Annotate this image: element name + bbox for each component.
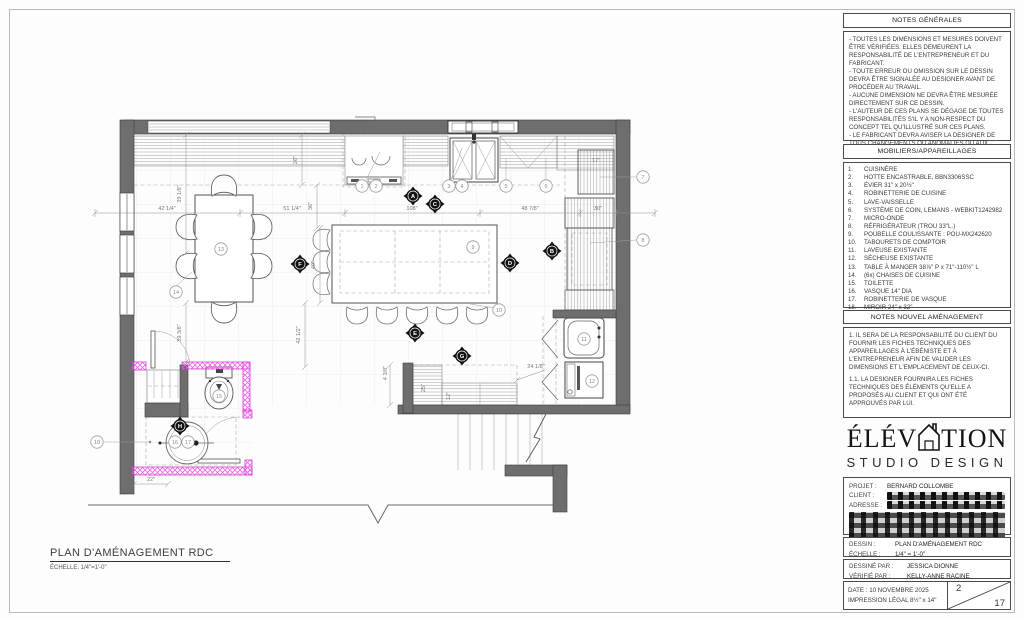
- window-left: [120, 193, 134, 315]
- list-item: 4.ROBINETTERIE DE CUISINE: [844, 190, 1010, 198]
- dim-label: 22": [147, 477, 155, 483]
- svg-text:G: G: [460, 354, 465, 360]
- svg-text:10: 10: [496, 308, 502, 314]
- notes-nouvel-p1: 1. IL SERA DE LA RESPONSABILITÉ DU CLIEN…: [844, 328, 1010, 376]
- dessin-row: DESSIN : PLAN D'AMÉNAGEMENT RDC: [849, 540, 1005, 550]
- svg-text:E: E: [413, 331, 417, 337]
- refrigerator: [567, 228, 612, 290]
- svg-text:5: 5: [505, 184, 508, 190]
- plan-title-block: PLAN D'AMÉNAGEMENT RDC ÉCHELLE: 1/4"=1'-…: [50, 543, 230, 571]
- logo-subtitle: STUDIO DESIGN: [843, 455, 1011, 470]
- list-item: 16.VASQUE 14" DIA: [844, 288, 1010, 296]
- house-icon: [916, 421, 942, 451]
- list-item: 9.POUBELLE COULISSANTE : POU-MX242620: [844, 231, 1010, 239]
- svg-text:6: 6: [545, 184, 548, 190]
- svg-text:3: 3: [448, 184, 451, 190]
- dessine-value: JESSICA DIONNE: [907, 562, 958, 572]
- dim-label: 25": [421, 384, 427, 392]
- callout-7: 7: [637, 171, 649, 183]
- list-item: 15.TOILETTE: [844, 280, 1010, 288]
- callout-17: 17: [182, 436, 194, 448]
- page-number-cell: 2 17: [947, 582, 1010, 609]
- dim-label: 39 3/8": [177, 324, 183, 342]
- callout-2: 2: [370, 180, 382, 192]
- projet-value: BERNARD COLLOMBE: [887, 482, 953, 491]
- svg-text:D: D: [508, 261, 512, 267]
- svg-text:4: 4: [461, 184, 464, 190]
- dim-label: 26": [293, 156, 299, 164]
- echelle-value: 1/4" = 1'-0": [895, 550, 925, 560]
- verifie-value: KELLY-ANNE RACINE: [907, 572, 970, 582]
- adresse-row: ADRESSE :: [849, 501, 1005, 510]
- dessin-box: DESSIN : PLAN D'AMÉNAGEMENT RDC ÉCHELLE …: [843, 537, 1011, 557]
- notes-generales-title: NOTES GÉNÉRALES: [844, 14, 1010, 27]
- mobiliers-header-box: MOBILIERS/APPAREILLAGES: [843, 144, 1011, 159]
- address-redacted-block: [849, 512, 1005, 538]
- svg-text:8: 8: [642, 238, 645, 244]
- callout-5: 5: [500, 180, 512, 192]
- list-item: 7.MICRO-ONDE: [844, 215, 1010, 223]
- drawing-sheet: 42 1/4" 51 1/4" 108" 48 7/8" 30" 17" 39 …: [0, 0, 1024, 621]
- dim-label: 12": [446, 392, 452, 400]
- closet: [147, 370, 184, 403]
- credits-box: DESSINÉ PAR : JESSICA DIONNE VÉRIFIÉ PAR…: [843, 559, 1011, 579]
- logo-text-left: ÉLÉV: [847, 426, 917, 452]
- dessine-label: DESSINÉ PAR :: [849, 562, 901, 572]
- dessine-row: DESSINÉ PAR : JESSICA DIONNE: [849, 562, 1005, 572]
- svg-text:H: H: [178, 424, 182, 430]
- verifie-row: VÉRIFIÉ PAR : KELLY-ANNE RACINE: [849, 572, 1005, 582]
- logo-wordmark: ÉLÉV TION: [843, 421, 1011, 452]
- counter-mid: [403, 136, 448, 166]
- wall-closet-side: [180, 365, 188, 417]
- wall-bench-stub: [403, 363, 413, 413]
- projet-label: PROJET :: [849, 482, 883, 491]
- notes-nouvel-p2: 1.1. LA DESIGNER FOURNIRA LES FICHES TEC…: [844, 376, 1010, 412]
- list-item: 10.TABOURETS DE COMPTOIR: [844, 239, 1010, 247]
- corner-cabinet: [500, 136, 557, 168]
- svg-text:2: 2: [375, 184, 378, 190]
- svg-text:16: 16: [172, 440, 178, 446]
- list-item: 13.TABLE À MANGER 38⅞" P x 71"-110½" L: [844, 264, 1010, 272]
- title-block-panel: NOTES GÉNÉRALES - TOUTES LES DIMENSIONS …: [843, 0, 1013, 621]
- svg-text:1: 1: [361, 184, 364, 190]
- impression-value: IMPRESSION LÉGAL 8½" x 14": [848, 596, 943, 606]
- client-row: CLIENT :: [849, 491, 1005, 500]
- notes-nouvel-title: NOTES NOUVEL AMÉNAGEMENT: [844, 311, 1010, 324]
- notes-generales-body: - TOUTES LES DIMENSIONS ET MESURES DOIVE…: [844, 32, 1010, 160]
- svg-text:7: 7: [642, 175, 645, 181]
- adresse-label: ADRESSE :: [849, 501, 883, 510]
- logo-text-right: TION: [941, 426, 1007, 452]
- callout-8: 8: [637, 234, 649, 246]
- notes-generales-header-box: NOTES GÉNÉRALES: [843, 13, 1011, 28]
- svg-text:B: B: [550, 249, 554, 255]
- window-top-kitchen: [448, 121, 518, 133]
- page-number: 2: [956, 583, 961, 594]
- callout-1: 1: [356, 180, 368, 192]
- callout-16: 16: [169, 436, 181, 448]
- list-item: 12.SÉCHEUSE EXISTANTE: [844, 255, 1010, 263]
- dim-label: 24 1/8": [527, 364, 545, 370]
- studio-logo: ÉLÉV TION STUDIO DESIGN: [843, 421, 1011, 470]
- list-item: 5.LAVE-VAISSELLE: [844, 199, 1010, 207]
- dessin-label: DESSIN :: [849, 540, 889, 550]
- callout-13: 13: [215, 243, 227, 255]
- date-cell: DATE : 10 NOVEMBRE 2025 IMPRESSION LÉGAL…: [844, 582, 947, 609]
- callout-3: 3: [443, 180, 455, 192]
- cooktop: [343, 134, 405, 187]
- callout-14: 14: [170, 286, 182, 298]
- svg-text:9: 9: [472, 245, 475, 251]
- dim-label: 42 1/4": [158, 206, 176, 212]
- callout-18: 18: [91, 436, 103, 448]
- cabinet-17in: [578, 150, 614, 194]
- client-label: CLIENT :: [849, 491, 883, 500]
- svg-text:11: 11: [581, 337, 587, 343]
- dim-label: 48 7/8": [521, 206, 539, 212]
- page-total: 17: [994, 598, 1005, 609]
- callout-12: 12: [586, 375, 598, 387]
- list-item: 2.HOTTE ENCASTRABLE, BBN3306SSC: [844, 174, 1010, 182]
- dim-label: 4 3/8": [383, 366, 389, 380]
- callout-9: 9: [467, 241, 479, 253]
- date-value: DATE : 10 NOVEMBRE 2025: [848, 586, 943, 596]
- dim-label: 49": [311, 261, 317, 269]
- kitchen-island: [332, 225, 497, 303]
- dim-label: 36": [308, 202, 314, 210]
- callout-4: 4: [456, 180, 468, 192]
- cabinet-lower-right: [565, 290, 614, 310]
- kitchen-sink: [450, 132, 498, 182]
- plan-title: PLAN D'AMÉNAGEMENT RDC: [50, 547, 230, 562]
- project-row: PROJET : BERNARD COLLOMBE: [849, 482, 1005, 491]
- svg-text:18: 18: [94, 440, 100, 446]
- notes-nouvel-header-box: NOTES NOUVEL AMÉNAGEMENT: [843, 310, 1011, 324]
- verifie-label: VÉRIFIÉ PAR :: [849, 572, 901, 582]
- callout-15: 15: [213, 390, 225, 402]
- client-redacted: [887, 492, 1005, 500]
- plan-scale: ÉCHELLE: 1/4"=1'-0": [50, 565, 230, 571]
- dim-label: 51 1/4": [283, 206, 301, 212]
- list-item: 6.SYSTÈME DE COIN, LEMANS - WEBKIT124298…: [844, 207, 1010, 215]
- date-box: DATE : 10 NOVEMBRE 2025 IMPRESSION LÉGAL…: [843, 581, 1011, 610]
- wall-laundry-top: [553, 310, 616, 318]
- echelle-row: ÉCHELLE : 1/4" = 1'-0": [849, 550, 1005, 560]
- stairs: [458, 413, 546, 470]
- ground-line: [88, 505, 553, 523]
- toilet: [205, 367, 233, 409]
- wall-right: [616, 120, 630, 412]
- svg-text:15: 15: [216, 394, 222, 400]
- list-item: 3.ÉVIER 31" x 20½": [844, 182, 1010, 190]
- adresse-redacted: [887, 501, 1005, 509]
- dim-label: 30": [594, 206, 602, 212]
- floor-plan: 42 1/4" 51 1/4" 108" 48 7/8" 30" 17" 39 …: [0, 0, 840, 621]
- callout-6: 6: [540, 180, 552, 192]
- dim-label: 42 1/2": [296, 326, 302, 344]
- callout-11: 11: [578, 333, 590, 345]
- dessin-value: PLAN D'AMÉNAGEMENT RDC: [895, 540, 982, 550]
- list-item: 17.ROBINETTERIE DE VASQUE: [844, 296, 1010, 304]
- wall-bottom-kitchen: [398, 405, 630, 414]
- echelle-label: ÉCHELLE :: [849, 550, 889, 560]
- dim-label: 17": [592, 158, 600, 164]
- mobiliers-list-box: 1.CUISINÈRE 2.HOTTE ENCASTRABLE, BBN3306…: [843, 162, 1011, 308]
- svg-text:14: 14: [173, 290, 179, 296]
- dim-label: 108": [406, 206, 417, 212]
- wall-stairs-side: [553, 465, 567, 512]
- counter-left: [134, 136, 345, 166]
- list-item: 8.RÉFRIGÉRATEUR (TROU 33"L.): [844, 223, 1010, 231]
- list-item: 11.LAVEUSE EXISTANTE: [844, 247, 1010, 255]
- svg-text:12: 12: [589, 379, 595, 385]
- svg-text:F: F: [298, 262, 302, 268]
- list-item: 1.CUISINÈRE: [844, 166, 1010, 174]
- svg-text:13: 13: [218, 247, 224, 253]
- callout-10: 10: [493, 304, 505, 316]
- svg-text:17: 17: [185, 440, 191, 446]
- dim-label: 39 1/8": [177, 185, 183, 203]
- list-item: 14.(6x) CHAISES DE CUISINE: [844, 272, 1010, 280]
- project-box: PROJET : BERNARD COLLOMBE CLIENT : ADRES…: [843, 477, 1011, 535]
- mobiliers-title: MOBILIERS/APPAREILLAGES: [844, 145, 1010, 158]
- notes-generales-body-box: - TOUTES LES DIMENSIONS ET MESURES DOIVE…: [843, 31, 1011, 141]
- notes-nouvel-body-box: 1. IL SERA DE LA RESPONSABILITÉ DU CLIEN…: [843, 327, 1011, 418]
